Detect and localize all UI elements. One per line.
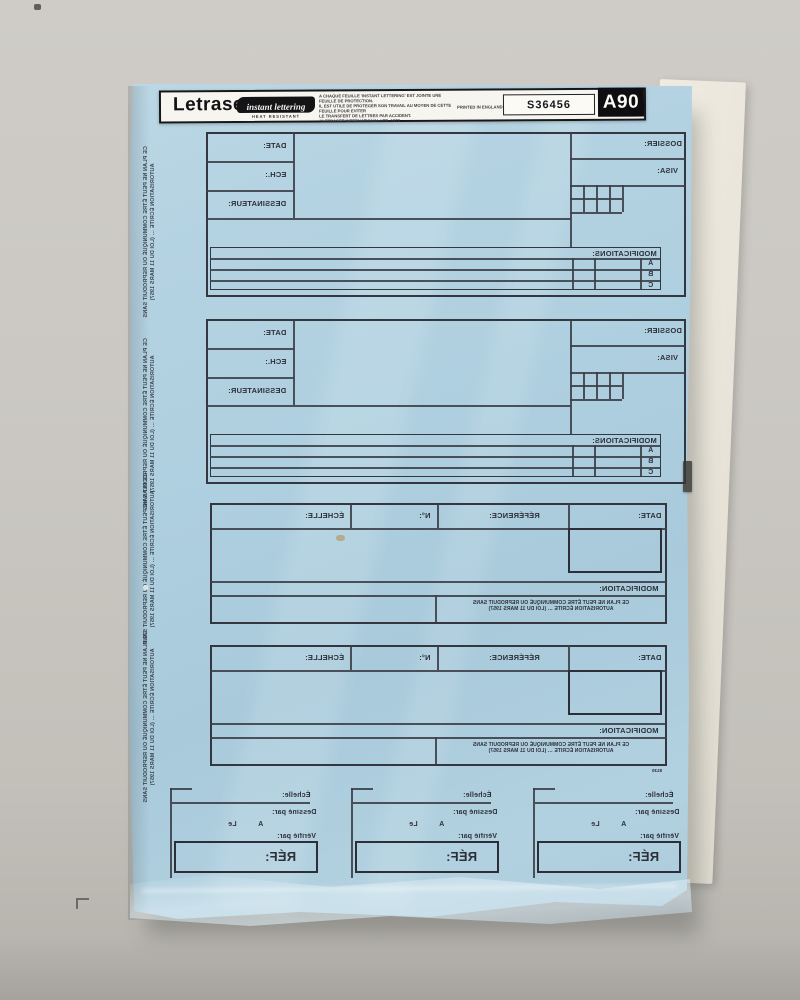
row-c-label: C — [640, 280, 662, 291]
ref-label: RÉF: — [176, 843, 296, 871]
reference-label: RÉFÉRENCE: — [437, 509, 540, 523]
echelle-label: ÉCHELLE: — [210, 509, 344, 523]
row-a-label: A — [640, 258, 662, 269]
modification-label: MODIFICATION: — [500, 583, 659, 594]
date-label: DATE: — [568, 651, 661, 665]
printed-in-england-label: PRINTED IN ENGLAND — [457, 104, 503, 109]
sheet-id: A90 — [603, 92, 639, 113]
backdrop-speck — [34, 4, 41, 10]
dessine-par-label: Dessiné par: — [351, 807, 497, 819]
dessine-par-label: Dessiné par: — [533, 807, 679, 819]
sheet-code: S36456 — [527, 99, 571, 111]
ref-label: RÉF: — [539, 843, 659, 871]
echelle-label: Échelle: — [170, 790, 310, 802]
numero-label: N°: — [350, 509, 431, 523]
row-b-label: B — [640, 456, 662, 467]
dessine-par-label: Dessiné par: — [170, 807, 316, 819]
protection-notice: A CHAQUE FEUILLE 'INSTANT LETTERING' EST… — [319, 94, 459, 124]
echelle-label: ÉCHELLE: — [210, 651, 344, 665]
ech-label: ECH.: — [206, 355, 286, 369]
ech-label: ECH.: — [206, 168, 286, 182]
date-label: DATE: — [206, 139, 286, 153]
row-c-label: C — [640, 467, 662, 478]
heat-resistant-label: HEAT RESISTANT — [237, 114, 315, 119]
photo-of-letraset-sheet: Letraset instant lettering HEAT RESISTAN… — [0, 0, 800, 1000]
sheet-code-box: S36456 — [503, 94, 595, 116]
row-b-label: B — [640, 269, 662, 280]
visa-label: VISA: — [570, 351, 678, 365]
white-speck — [143, 585, 148, 590]
margin-note-4: CE PLAN NE PEUT ÊTRE COMMUNIQUÉ OU REPRO… — [143, 617, 157, 817]
le-label: Le — [170, 819, 237, 831]
margin-note-1: CE PLAN NE PEUT ÊTRE COMMUNIQUÉ OU REPRO… — [143, 132, 157, 332]
legal-note: CE PLAN NE PEUT ÊTRE COMMUNIQUÉ OU REPRO… — [437, 600, 665, 612]
dessinateur-label: DESSINATEUR: — [206, 384, 286, 398]
dossier-label: DOSSIER: — [570, 324, 682, 338]
sheet-id-badge: A90 — [598, 88, 644, 117]
modification-label: MODIFICATION: — [500, 725, 659, 736]
modifications-label: MODIFICATIONS: — [510, 435, 657, 446]
ref-label: RÉF: — [357, 843, 477, 871]
legal-note: CE PLAN NE PEUT ÊTRE COMMUNIQUÉ OU REPRO… — [437, 742, 665, 754]
thick-frame — [568, 670, 662, 715]
echelle-label: Échelle: — [351, 790, 491, 802]
echelle-label: Échelle: — [533, 790, 673, 802]
row-a-label: A — [640, 445, 662, 456]
bottom-vignette — [0, 935, 800, 1000]
le-label: Le — [351, 819, 418, 831]
le-label: Le — [533, 819, 600, 831]
thick-frame — [568, 528, 662, 573]
reference-label: RÉFÉRENCE: — [437, 651, 540, 665]
date-label: DATE: — [568, 509, 661, 523]
visa-label: VISA: — [570, 164, 678, 178]
numero-label: N°: — [350, 651, 431, 665]
corner-code: 8130 — [600, 768, 662, 773]
modifications-label: MODIFICATIONS: — [510, 248, 657, 259]
instant-lettering-label: instant lettering — [247, 102, 306, 112]
date-label: DATE: — [206, 326, 286, 340]
notice-line: ©LETRASET INTERNATIONAL LTD. 1973 — [319, 118, 459, 124]
ref-box: RÉF: — [174, 841, 318, 873]
ref-box: RÉF: — [355, 841, 499, 873]
instant-lettering-badge: instant lettering — [237, 97, 315, 113]
header-bar: Letraset instant lettering HEAT RESISTAN… — [159, 88, 646, 124]
tape-speck — [336, 535, 345, 541]
dossier-label: DOSSIER: — [570, 137, 682, 151]
dessinateur-label: DESSINATEUR: — [206, 197, 286, 211]
ref-box: RÉF: — [537, 841, 681, 873]
